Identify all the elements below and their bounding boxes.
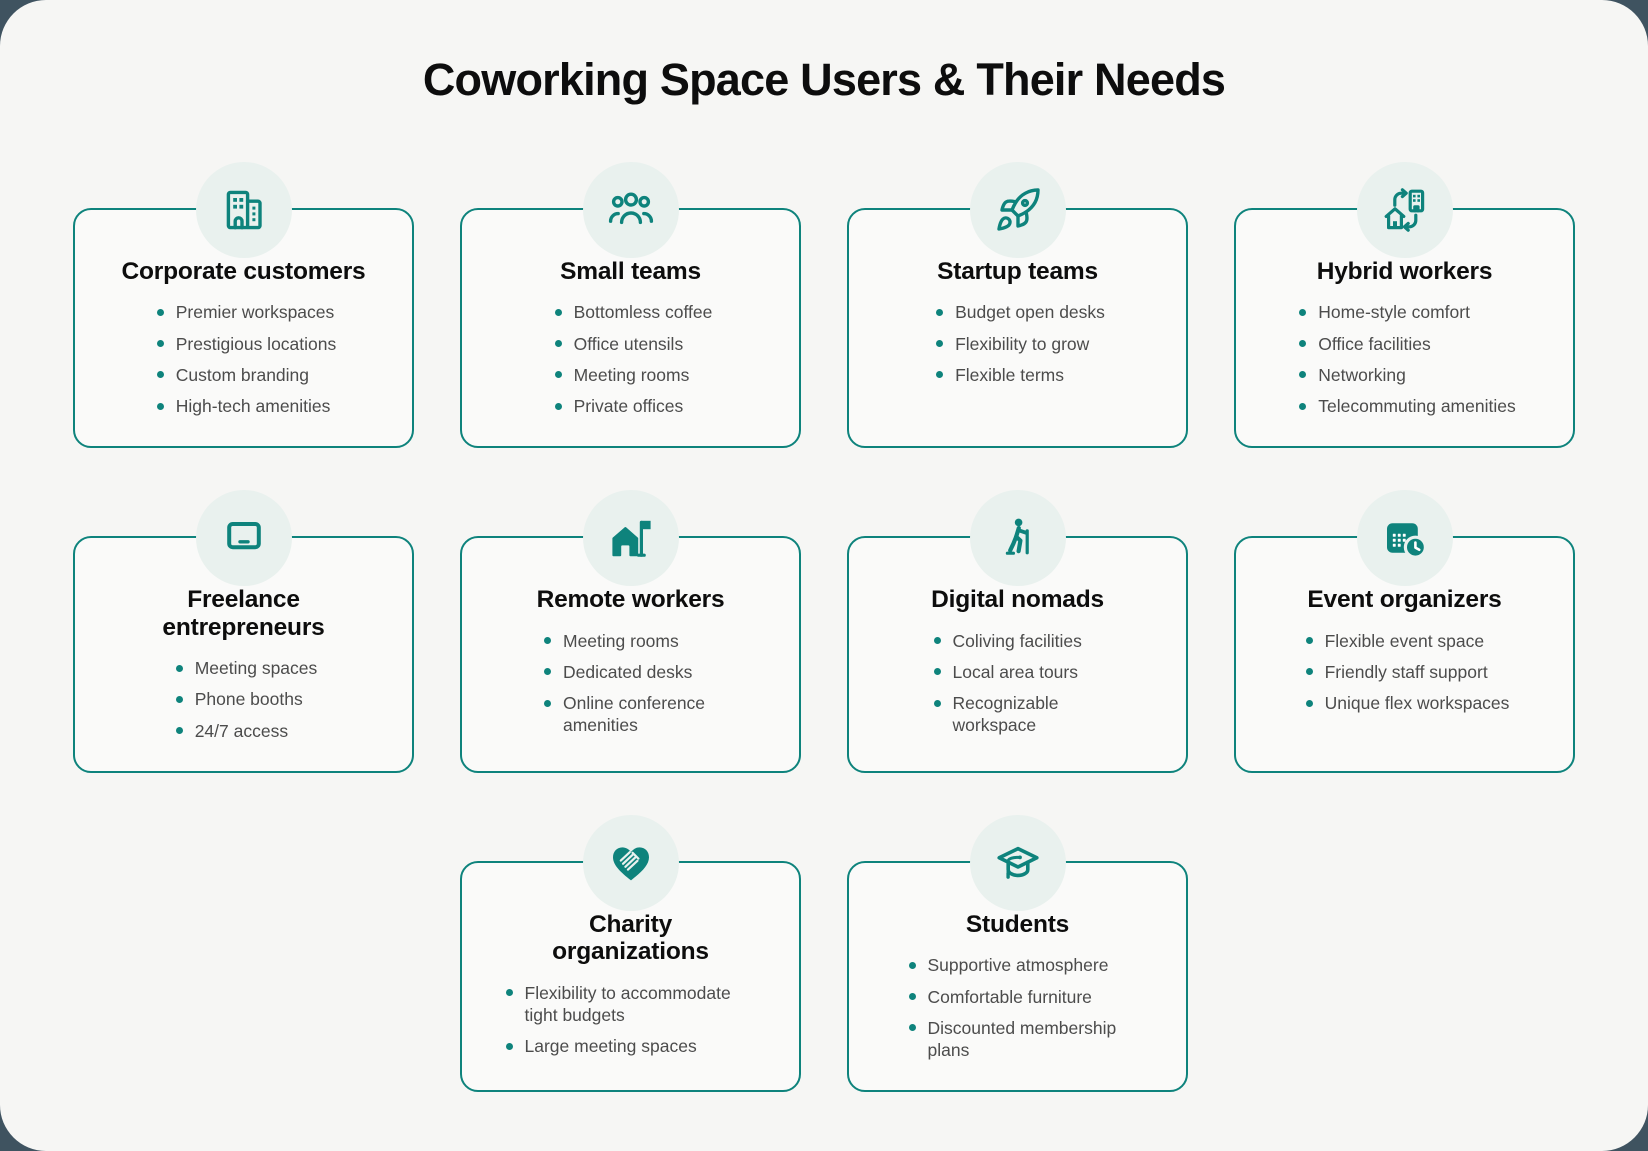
card-title: Remote workers — [480, 586, 781, 613]
need-item: Coliving facilities — [928, 630, 1108, 652]
office-building-icon — [220, 186, 268, 234]
need-item: Supportive atmosphere — [903, 954, 1133, 976]
card-title: Event organizers — [1254, 586, 1555, 613]
icon-circle — [970, 815, 1066, 911]
calendar-clock-icon — [1381, 514, 1429, 562]
need-item: Telecommuting amenities — [1293, 395, 1515, 417]
card-title: Freelance entrepreneurs — [93, 586, 394, 641]
card-needs-list: Premier workspacesPrestigious locationsC… — [151, 301, 337, 426]
icon-circle — [970, 490, 1066, 586]
need-item: Flexible event space — [1300, 630, 1510, 652]
need-item: Custom branding — [151, 364, 337, 386]
card-freelance-entrepreneurs: Freelance entrepreneurs Meeting spacesPh… — [73, 536, 414, 773]
icon-circle — [1357, 490, 1453, 586]
icon-circle — [970, 162, 1066, 258]
icon-circle — [583, 162, 679, 258]
card-needs-list: Bottomless coffeeOffice utensilsMeeting … — [549, 301, 713, 426]
need-item: Prestigious locations — [151, 333, 337, 355]
need-item: Large meeting spaces — [500, 1035, 762, 1057]
card-needs-list: Meeting spacesPhone booths24/7 access — [170, 657, 318, 751]
house-flag-icon — [607, 514, 655, 562]
card-needs-list: Budget open desksFlexibility to growFlex… — [930, 301, 1105, 395]
need-item: Flexibility to grow — [930, 333, 1105, 355]
card-hybrid-workers: Hybrid workers Home-style comfortOffice … — [1234, 208, 1575, 448]
need-item: Meeting rooms — [538, 630, 723, 652]
need-item: Comfortable furniture — [903, 986, 1133, 1008]
need-item: Friendly staff support — [1300, 661, 1510, 683]
need-item: Office facilities — [1293, 333, 1515, 355]
card-needs-list: Home-style comfortOffice facilitiesNetwo… — [1293, 301, 1515, 426]
card-corporate-customers: Corporate customers Premier workspacesPr… — [73, 208, 414, 448]
laptop-icon — [220, 514, 268, 562]
card-small-teams: Small teams Bottomless coffeeOffice uten… — [460, 208, 801, 448]
people-group-icon — [607, 186, 655, 234]
card-title: Hybrid workers — [1254, 258, 1555, 285]
cards-grid: Corporate customers Premier workspacesPr… — [73, 208, 1575, 1092]
home-office-swap-icon — [1381, 186, 1429, 234]
card-title: Students — [867, 911, 1168, 938]
card-students: Students Supportive atmosphereComfortabl… — [847, 861, 1188, 1092]
need-item: Discounted membership plans — [903, 1017, 1133, 1061]
icon-circle — [1357, 162, 1453, 258]
page-title: Coworking Space Users & Their Needs — [0, 54, 1648, 106]
card-needs-list: Meeting roomsDedicated desksOnline confe… — [538, 630, 723, 746]
need-item: Unique flex workspaces — [1300, 692, 1510, 714]
card-remote-workers: Remote workers Meeting roomsDedicated de… — [460, 536, 801, 773]
card-digital-nomads: Digital nomads Coliving facilitiesLocal … — [847, 536, 1188, 773]
heart-hand-icon — [607, 839, 655, 887]
need-item: Online conference amenities — [538, 692, 723, 736]
need-item: High-tech amenities — [151, 395, 337, 417]
hiker-icon — [994, 514, 1042, 562]
icon-circle — [196, 490, 292, 586]
need-item: Office utensils — [549, 333, 713, 355]
graduation-cap-icon — [994, 839, 1042, 887]
card-charity-organizations: Charity organizations Flexibility to acc… — [460, 861, 801, 1092]
icon-circle — [583, 815, 679, 911]
rocket-icon — [994, 186, 1042, 234]
card-title: Small teams — [480, 258, 781, 285]
card-title: Digital nomads — [867, 586, 1168, 613]
card-title: Startup teams — [867, 258, 1168, 285]
card-needs-list: Flexible event spaceFriendly staff suppo… — [1300, 630, 1510, 724]
need-item: Meeting rooms — [549, 364, 713, 386]
need-item: Local area tours — [928, 661, 1108, 683]
card-needs-list: Coliving facilitiesLocal area toursRecog… — [928, 630, 1108, 746]
card-needs-list: Supportive atmosphereComfortable furnitu… — [903, 954, 1133, 1070]
card-startup-teams: Startup teams Budget open desksFlexibili… — [847, 208, 1188, 448]
need-item: Home-style comfort — [1293, 301, 1515, 323]
need-item: Flexible terms — [930, 364, 1105, 386]
need-item: Flexibility to accommodate tight budgets — [500, 982, 762, 1026]
need-item: Bottomless coffee — [549, 301, 713, 323]
need-item: Recognizable workspace — [928, 692, 1108, 736]
need-item: Premier workspaces — [151, 301, 337, 323]
card-title: Charity organizations — [480, 911, 781, 966]
need-item: Networking — [1293, 364, 1515, 386]
need-item: Dedicated desks — [538, 661, 723, 683]
card-title: Corporate customers — [93, 258, 394, 285]
need-item: Meeting spaces — [170, 657, 318, 679]
icon-circle — [583, 490, 679, 586]
need-item: Phone booths — [170, 688, 318, 710]
icon-circle — [196, 162, 292, 258]
card-needs-list: Flexibility to accommodate tight budgets… — [500, 982, 762, 1067]
card-event-organizers: Event organizers Flexible event spaceFri… — [1234, 536, 1575, 773]
need-item: 24/7 access — [170, 720, 318, 742]
need-item: Budget open desks — [930, 301, 1105, 323]
need-item: Private offices — [549, 395, 713, 417]
